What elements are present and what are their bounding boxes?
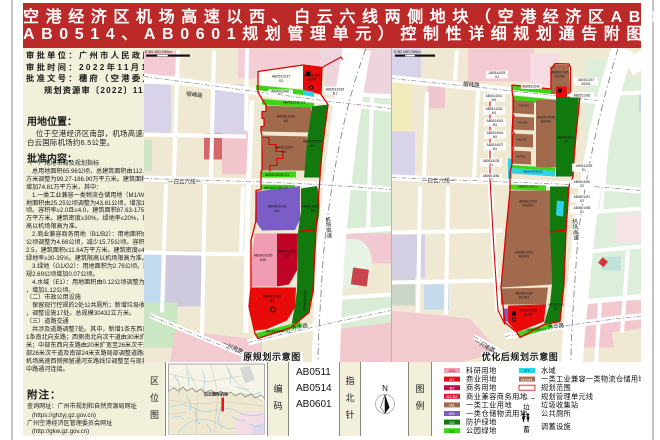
svg-text:G2: G2 (580, 199, 584, 203)
svg-text:蓄: 蓄 (523, 425, 530, 434)
svg-text:M1/W1: M1/W1 (541, 119, 552, 123)
svg-text:M1/W1: M1/W1 (519, 254, 530, 258)
svg-text:G2: G2 (311, 208, 315, 212)
svg-text:AB0511039 G1: AB0511039 G1 (283, 100, 306, 104)
svg-text:M1/W1: M1/W1 (516, 154, 526, 158)
svg-text:AB0511040: AB0511040 (522, 84, 540, 88)
svg-text:B1/B2: B1/B2 (523, 312, 532, 316)
svg-text:AB0601032: AB0601032 (263, 294, 282, 298)
svg-text:B1/B2: B1/B2 (308, 77, 317, 81)
svg-text:AB0511028 G1: AB0511028 G1 (265, 173, 289, 177)
svg-text:M1/W1: M1/W1 (517, 137, 527, 141)
svg-text:M1: M1 (493, 147, 498, 151)
svg-text:B2: B2 (285, 254, 289, 258)
svg-text:公共厕所: 公共厕所 (541, 409, 571, 418)
svg-text:G1: G1 (449, 428, 455, 433)
svg-text:一白云六线一: 一白云六线一 (422, 176, 456, 184)
svg-text:E1: E1 (489, 177, 493, 181)
svg-text:M1: M1 (493, 123, 498, 127)
svg-text:一白云六线一: 一白云六线一 (168, 177, 202, 185)
svg-text:调蓄设施: 调蓄设施 (541, 422, 571, 431)
svg-text:0 50 100 200m: 0 50 100 200m (145, 49, 172, 54)
svg-text:B1: B1 (270, 299, 274, 303)
svg-text:A35: A35 (448, 368, 456, 373)
svg-text:AB0601036: AB0601036 (254, 253, 273, 257)
svg-text:G1: G1 (279, 79, 284, 83)
svg-text:公园绿地: 公园绿地 (466, 426, 497, 435)
svg-text:M1: M1 (284, 119, 289, 123)
svg-text:白云国际机场: 白云国际机场 (204, 391, 228, 397)
svg-text:G1: G1 (495, 75, 499, 79)
svg-text:AB0601031: AB0601031 (278, 249, 297, 253)
svg-text:G2: G2 (554, 306, 558, 310)
svg-text:AB0601060 G1: AB0601060 G1 (526, 327, 547, 331)
svg-text:B1/B2: B1/B2 (582, 82, 591, 86)
svg-text:0 50 100 200m: 0 50 100 200m (394, 49, 421, 54)
svg-text:E1: E1 (333, 91, 337, 95)
svg-text:M1/W1: M1/W1 (521, 378, 532, 382)
svg-text:M1: M1 (493, 135, 498, 139)
svg-text:AB0511037: AB0511037 (272, 74, 291, 78)
svg-text:AB0601036 G1: AB0601036 G1 (518, 184, 539, 188)
svg-text:W1: W1 (274, 209, 279, 213)
svg-text:E1: E1 (525, 368, 531, 373)
svg-text:M1/W1: M1/W1 (555, 74, 566, 78)
svg-text:M1: M1 (282, 150, 287, 154)
svg-text:M1/W1: M1/W1 (523, 203, 534, 207)
svg-text:N: N (382, 384, 388, 393)
svg-text:G2: G2 (564, 139, 569, 143)
svg-text:M1/W1: M1/W1 (518, 120, 528, 124)
svg-text:E1: E1 (580, 210, 584, 214)
svg-text:B1 B2: B1 B2 (447, 394, 459, 399)
svg-text:G2: G2 (449, 420, 455, 425)
svg-text:垃: 垃 (523, 403, 530, 412)
svg-text:AB0511026: AB0511026 (277, 114, 296, 118)
svg-text:G1: G1 (278, 92, 282, 96)
svg-text:AB0514038 E1: AB0514038 E1 (523, 169, 544, 173)
svg-text:B2: B2 (450, 385, 456, 390)
svg-text:G2: G2 (580, 184, 584, 188)
svg-text:M1/W1: M1/W1 (519, 295, 530, 299)
svg-text:E1: E1 (582, 168, 586, 172)
svg-text:M1: M1 (449, 403, 455, 408)
svg-text:AB0511029: AB0511029 (303, 139, 322, 143)
svg-text:AB0511027: AB0511027 (275, 145, 294, 149)
svg-text:B1: B1 (450, 377, 456, 382)
svg-text:AB0601029: AB0601029 (268, 204, 287, 208)
svg-text:M1: M1 (492, 111, 497, 115)
svg-text:G1: G1 (489, 163, 493, 167)
svg-text:AB0511036: AB0511036 (574, 93, 591, 97)
svg-text:AB0601044 G1: AB0601044 G1 (266, 329, 291, 333)
svg-text:A35: A35 (260, 258, 266, 262)
svg-text:AB0601028 G1: AB0601028 G1 (264, 186, 289, 190)
svg-text:W1: W1 (449, 411, 456, 416)
svg-text:W1: W1 (492, 98, 497, 102)
svg-text:M1/W1: M1/W1 (519, 103, 529, 107)
svg-text:G2: G2 (310, 144, 315, 148)
